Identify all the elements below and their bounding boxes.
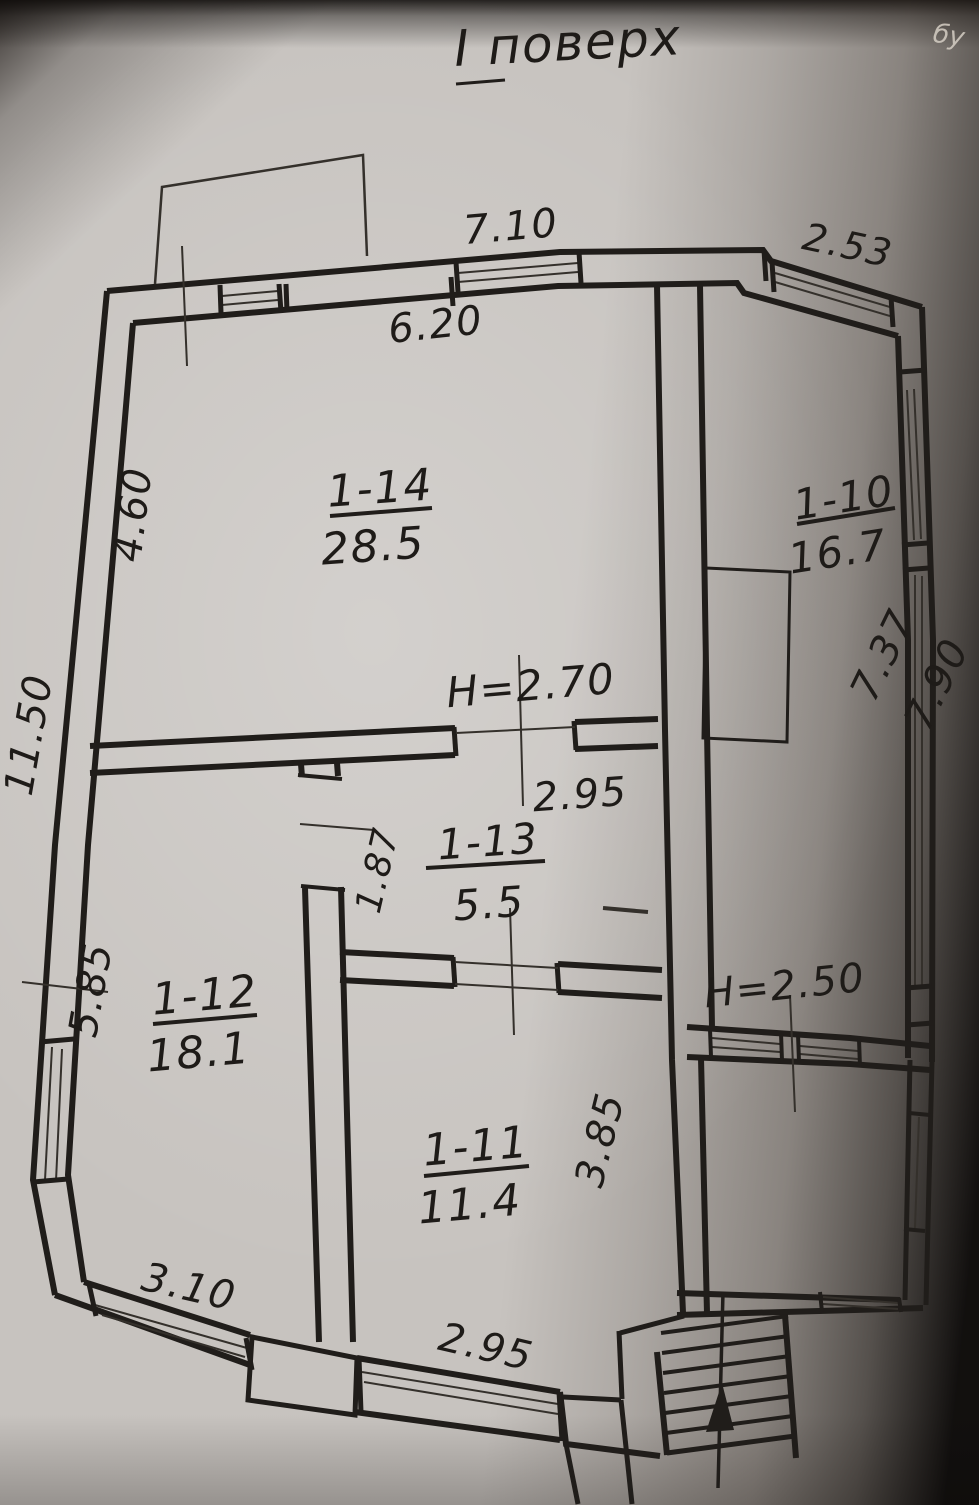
dimension-top-right-wall: 2.53 [799,214,897,276]
wall-line [687,1027,930,1046]
wall-line [340,952,662,970]
extension-line [182,246,187,366]
wall-line [677,1293,900,1300]
wall-line [700,285,712,1028]
window-line [362,1372,558,1414]
wall-line [701,1058,707,1313]
extension-line [510,908,514,1035]
wall-line [355,1412,560,1440]
dimension-top-wall: 7.10 [462,200,561,254]
stair-step [664,1376,791,1393]
door-jamb [453,957,455,987]
room-label-1-11: 1-11 11.4 [416,1117,531,1235]
room-label-1-12: 1-12 18.1 [145,966,260,1083]
stair-step [662,1336,789,1353]
dimension-hall-width: 2.95 [531,769,629,822]
room-area: 28.5 [319,517,426,575]
threshold-line [456,727,575,733]
threshold-line [455,984,558,990]
room-area: 5.5 [452,877,527,931]
wall-line [687,1057,930,1070]
window-line [915,1117,919,1228]
wall-line [107,250,922,307]
ceiling-height-label: Н=2.50 [702,955,868,1018]
threshold-line [455,962,558,968]
dimension-room-1-14-left: 4.60 [104,464,161,564]
stairs [661,1315,796,1458]
wall-line [301,764,319,1342]
wall-line [563,1397,621,1400]
ceiling-height-label: Н=2.70 [444,654,617,718]
dimension-room-1-11-depth: 3.85 [567,1088,635,1191]
wall-line [337,763,353,1342]
dimension-hall-depth: 1.87 [348,824,407,917]
window-line [907,389,921,540]
wall-line [657,1352,667,1455]
dimension-bottom-left-window: 3.10 [137,1254,240,1320]
extension-line [790,995,795,1112]
wall-line [90,755,455,773]
wall-line [90,728,455,746]
exterior-walls [33,250,933,1504]
page-title: І поверх [453,8,683,78]
porch-outline [155,155,367,284]
door-jamb [454,727,456,756]
dimension-room-1-14-width: 6.20 [386,297,485,353]
wall-pier [248,1337,357,1415]
window-line [800,1046,858,1059]
floor-plan-drawing: І поверх 7.10 2.53 6.20 4.60 11.50 5.85 … [0,0,979,1505]
window-line [712,1038,780,1052]
title-underline [456,80,505,84]
stair-step [667,1436,795,1453]
extension-line [300,824,374,830]
wall-line [657,285,683,1313]
door-jamb [574,721,576,750]
wall-line [133,283,898,336]
window-line [458,263,578,282]
wall-line [926,1062,932,1305]
wall-line [619,1331,622,1399]
window-line [45,1047,62,1181]
dimension-room-1-12-left: 5.85 [60,939,122,1041]
stair-step [663,1356,790,1373]
wall-line [340,980,662,998]
room-label-1-10: 1-10 16.7 [785,466,898,584]
wall-line [566,1444,578,1504]
wall-line [575,746,658,749]
photographed-floor-plan-page: І поверх 7.10 2.53 6.20 4.60 11.50 5.85 … [0,0,979,1505]
veranda-walls [677,1027,932,1315]
labels: І поверх 7.10 2.53 6.20 4.60 11.50 5.85 … [0,8,979,1380]
room-label-1-14: 1-14 28.5 [319,459,434,575]
wall-line [575,719,658,722]
room-area: 11.4 [416,1175,524,1235]
stove [703,568,790,742]
window-line [222,291,278,305]
room-area: 18.1 [145,1023,253,1083]
extension-line [603,908,648,912]
stairs-direction-arrow [706,1292,734,1488]
dimension-left-wall-total: 11.50 [0,671,62,799]
wall-line [905,1060,910,1300]
room-label-1-13: 1-13 5.5 [426,814,545,931]
dimension-bottom-window: 2.95 [434,1314,537,1380]
